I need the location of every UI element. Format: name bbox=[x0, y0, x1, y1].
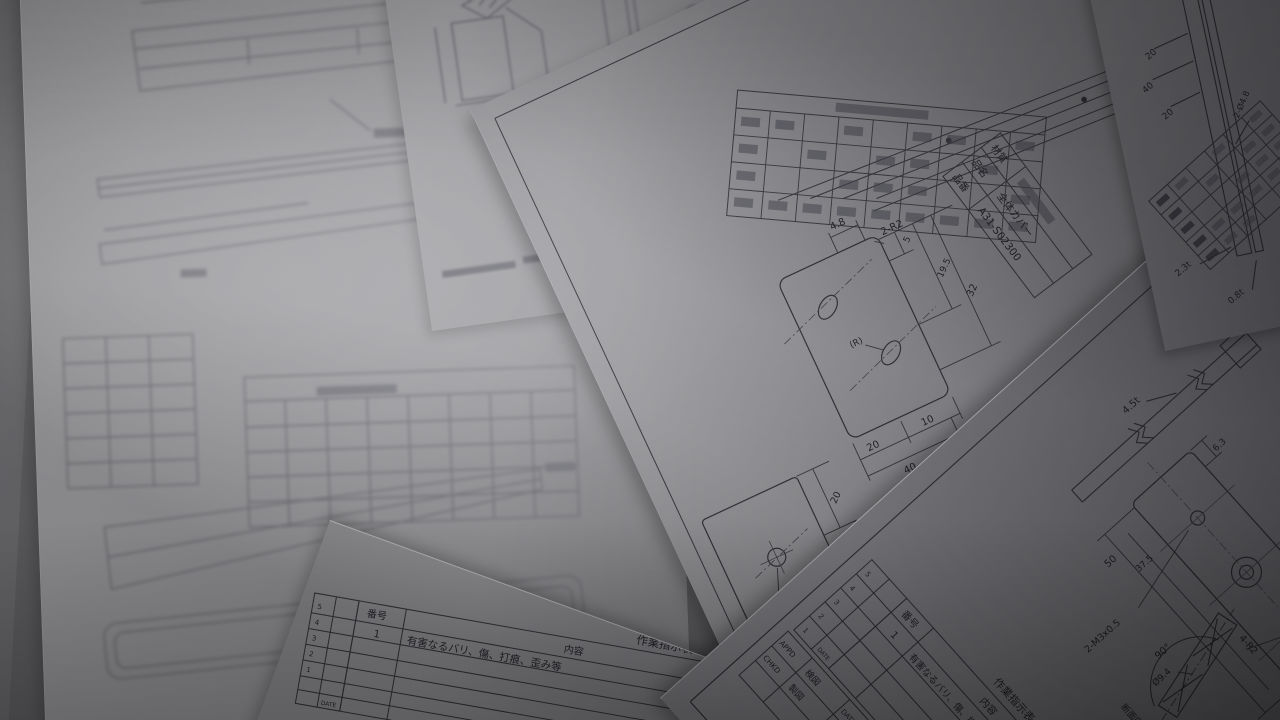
dim-e-holes: 2-Ø4.8 bbox=[1231, 89, 1252, 120]
dim-5: 5 bbox=[902, 235, 913, 244]
dim-19-5: 19.5 bbox=[936, 257, 954, 279]
rev-4: 4 bbox=[314, 619, 320, 628]
right-chkd-label: CHKD bbox=[761, 653, 782, 675]
right-row-number: 1 bbox=[888, 630, 900, 642]
dim-10: 10 bbox=[920, 414, 936, 429]
right-front-view: 50 37.5 6.3 2-M3x0.5 4-R2 bbox=[1020, 414, 1280, 720]
rev-5: 5 bbox=[317, 603, 323, 612]
dim-6-3: 6.3 bbox=[1211, 437, 1228, 454]
dim-e-40: 40 bbox=[1141, 81, 1156, 96]
dim-2-r2: 2-R2 bbox=[879, 218, 905, 238]
dim-e-20b: 20 bbox=[1161, 107, 1176, 122]
section-label: 断面図 bbox=[1118, 701, 1145, 720]
dim-37-5: 37.5 bbox=[1134, 554, 1156, 575]
dim-4-5t: 4.5t bbox=[1121, 395, 1143, 416]
dim-90deg: 90° bbox=[1153, 642, 1174, 662]
work-table-col-number: 番号 bbox=[366, 607, 388, 622]
right-approval-block: APPD 検図 DATE CHKD 製図 bbox=[739, 631, 872, 720]
dim-e-20a: 20 bbox=[1144, 47, 1159, 62]
dim-20: 20 bbox=[865, 439, 881, 454]
right-appd-label: APPD bbox=[778, 639, 798, 660]
right-rev-date: DATE bbox=[815, 646, 831, 662]
dim-50: 50 bbox=[1103, 553, 1120, 570]
right-col-number: 番号 bbox=[899, 608, 921, 631]
right-work-table-title: 作業指示表 bbox=[991, 675, 1038, 720]
dim-e-2-3t: 2.3t bbox=[1174, 260, 1194, 279]
dim-r-note: (R) bbox=[848, 336, 864, 351]
top-right-process-table bbox=[1149, 101, 1280, 270]
rev-2: 2 bbox=[308, 650, 314, 659]
dim-2-m3: 2-M3x0.5 bbox=[1083, 617, 1123, 655]
process-table bbox=[727, 90, 1047, 243]
right-rev-2: 2 bbox=[816, 612, 825, 621]
right-rev-1: 1 bbox=[801, 626, 810, 635]
part-number-label: 品番 bbox=[950, 171, 972, 194]
right-date-label: DATE bbox=[839, 708, 857, 720]
title-block: 材質 品名 全体カバー 品番 A31-S02300 bbox=[943, 133, 1092, 298]
work-row-number: 1 bbox=[373, 629, 381, 641]
dim-pitch-20: 20 bbox=[829, 490, 844, 506]
rev-3: 3 bbox=[311, 634, 317, 643]
dim-4-r2: 4-R2 bbox=[1237, 633, 1260, 657]
countersink-detail: 90° Ø9.4 断面図 bbox=[1106, 591, 1266, 720]
right-work-table: 作業指示表 番号 内容 1 有害なるバリ、傷、打痕、歪み等 5 4 3 bbox=[794, 547, 1082, 720]
right-rev-4: 4 bbox=[848, 584, 857, 593]
right-appd-title: 検図 bbox=[802, 667, 823, 688]
photo-of-engineering-drawings: 材質 品名 全体カバー 品番 A31-S02300 bbox=[0, 0, 1280, 720]
work-row-content: 有害なるバリ、傷、打痕、歪み等 bbox=[406, 634, 563, 674]
rev-1: 1 bbox=[306, 666, 312, 675]
right-chkd-title: 製図 bbox=[786, 682, 807, 703]
dim-e-0-8t: 0.8t bbox=[1226, 287, 1246, 306]
dim-32: 32 bbox=[965, 282, 980, 298]
work-table-col-content: 内容 bbox=[563, 642, 585, 658]
right-side-view: 4.5t bbox=[1053, 312, 1261, 506]
material-label: 材質 bbox=[988, 142, 1010, 166]
right-rev-3: 3 bbox=[832, 598, 841, 607]
right-rev-5: 5 bbox=[863, 570, 872, 579]
